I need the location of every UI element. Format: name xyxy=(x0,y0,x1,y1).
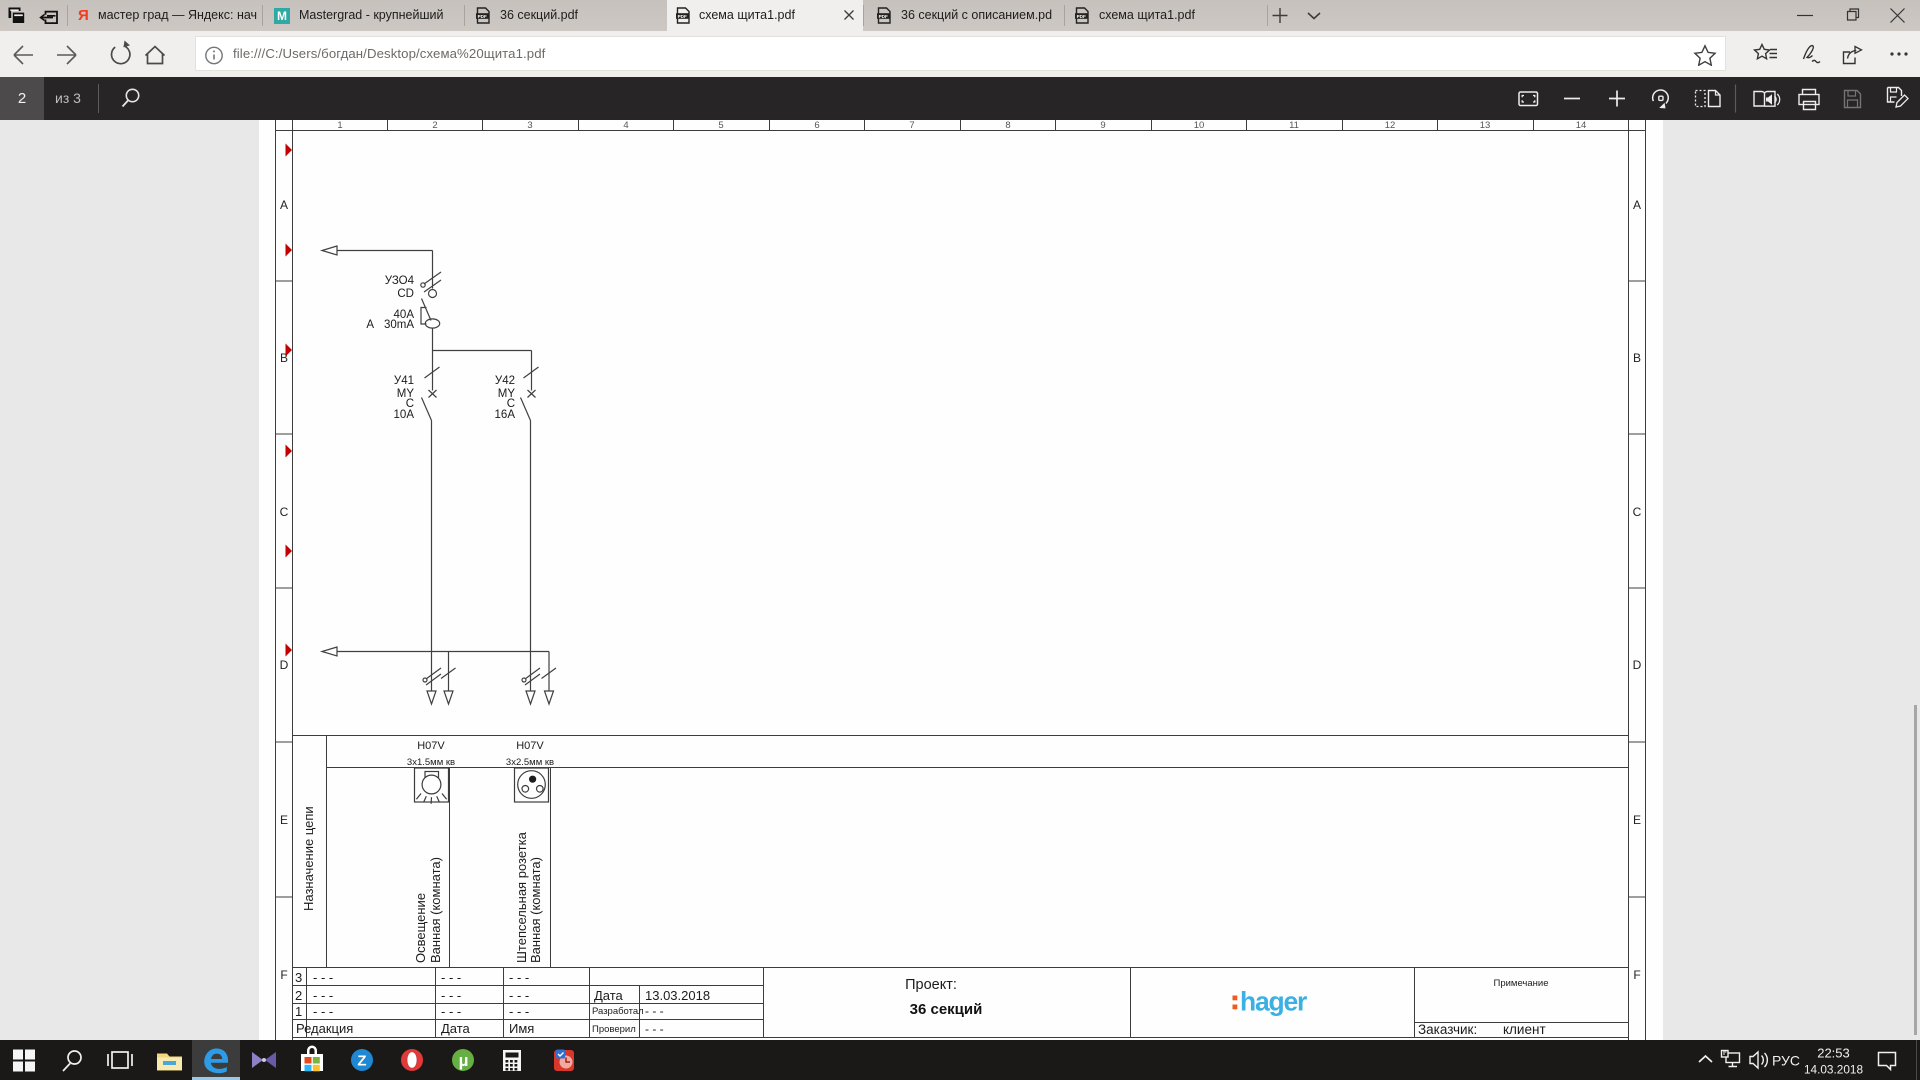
svg-text:F: F xyxy=(1633,968,1640,982)
svg-text:B: B xyxy=(1633,351,1641,365)
svg-text:µ: µ xyxy=(459,1051,469,1070)
svg-text:Примечание: Примечание xyxy=(1494,978,1549,989)
svg-text:10A: 10A xyxy=(394,409,415,421)
svg-text:6: 6 xyxy=(814,120,819,131)
svg-text:Ванная (комната): Ванная (комната) xyxy=(428,857,443,963)
svg-text:3x2.5мм кв: 3x2.5мм кв xyxy=(506,757,554,768)
svg-text:9: 9 xyxy=(1100,120,1105,131)
svg-text:Разработал: Разработал xyxy=(592,1006,644,1017)
svg-text:- - -: - - - xyxy=(313,970,333,985)
svg-text:- - -: - - - xyxy=(441,970,461,985)
svg-text:Редакция: Редакция xyxy=(296,1021,353,1036)
svg-text:14.03.2018: 14.03.2018 xyxy=(1804,1063,1863,1077)
svg-text:7: 7 xyxy=(909,120,914,131)
svg-text:- - -: - - - xyxy=(645,1022,664,1036)
svg-text:E: E xyxy=(280,813,288,827)
svg-text:клиент: клиент xyxy=(1503,1022,1546,1037)
svg-text:- - -: - - - xyxy=(509,970,529,985)
svg-text:hager: hager xyxy=(1240,987,1307,1017)
svg-text:1: 1 xyxy=(337,120,342,131)
svg-text:Заказчик:: Заказчик: xyxy=(1418,1022,1477,1037)
svg-text:22:53: 22:53 xyxy=(1817,1046,1850,1061)
svg-text:12: 12 xyxy=(1385,120,1396,131)
svg-text:- - -: - - - xyxy=(441,1004,461,1019)
svg-text:11: 11 xyxy=(1289,120,1299,131)
svg-text:Дата: Дата xyxy=(594,988,624,1003)
svg-text:Дата: Дата xyxy=(441,1021,471,1036)
svg-text:C: C xyxy=(280,505,289,519)
svg-text:2: 2 xyxy=(295,988,302,1003)
svg-text:30mA: 30mA xyxy=(384,319,414,331)
svg-text:3: 3 xyxy=(295,970,302,985)
svg-text:Ванная (комната): Ванная (комната) xyxy=(528,857,543,963)
svg-text:У42: У42 xyxy=(495,375,515,387)
svg-text:A: A xyxy=(1633,198,1641,212)
svg-text:A: A xyxy=(280,198,288,212)
svg-text:13: 13 xyxy=(1480,120,1491,131)
svg-text:РУС: РУС xyxy=(1772,1053,1800,1069)
svg-text:Штепсельная розетка: Штепсельная розетка xyxy=(514,831,529,963)
svg-text:H07V: H07V xyxy=(516,740,544,752)
svg-text:5: 5 xyxy=(718,120,723,131)
svg-text:Назначение цепи: Назначение цепи xyxy=(301,806,316,911)
svg-text:Проверил: Проверил xyxy=(592,1024,636,1035)
svg-text:2: 2 xyxy=(432,120,437,131)
svg-text:- - -: - - - xyxy=(313,988,333,1003)
svg-text:Z: Z xyxy=(357,1053,366,1070)
svg-text:F: F xyxy=(280,968,287,982)
svg-text:- - -: - - - xyxy=(313,1004,333,1019)
svg-text:УЗО4: УЗО4 xyxy=(385,275,415,287)
svg-text:13.03.2018: 13.03.2018 xyxy=(645,988,710,1003)
svg-text:A: A xyxy=(366,319,374,331)
svg-text:Имя: Имя xyxy=(509,1021,534,1036)
svg-text:- - -: - - - xyxy=(441,988,461,1003)
svg-text:3: 3 xyxy=(527,120,532,131)
svg-text:E: E xyxy=(1633,813,1641,827)
svg-text:10: 10 xyxy=(1194,120,1205,131)
svg-text:Проект:: Проект: xyxy=(905,977,957,993)
svg-text:- - -: - - - xyxy=(509,1004,529,1019)
svg-text:PDF: PDF xyxy=(678,14,687,19)
svg-text:36 секций: 36 секций xyxy=(910,1001,983,1018)
svg-text:3x1.5мм кв: 3x1.5мм кв xyxy=(407,757,455,768)
svg-text:D: D xyxy=(280,658,289,672)
svg-text:H07V: H07V xyxy=(417,740,445,752)
svg-text:- - -: - - - xyxy=(645,1004,664,1018)
svg-text:C: C xyxy=(1633,505,1642,519)
svg-text:PDF: PDF xyxy=(478,14,487,19)
svg-text:Освещение: Освещение xyxy=(413,893,428,963)
svg-text:4: 4 xyxy=(623,120,628,131)
svg-text:D: D xyxy=(1633,658,1642,672)
svg-text:14: 14 xyxy=(1576,120,1587,131)
svg-text:PDF: PDF xyxy=(1077,14,1086,19)
svg-text:16A: 16A xyxy=(495,409,516,421)
svg-text:PDF: PDF xyxy=(879,14,888,19)
svg-text:У41: У41 xyxy=(394,375,414,387)
svg-text:1: 1 xyxy=(295,1004,302,1019)
svg-text:8: 8 xyxy=(1005,120,1010,131)
svg-text:- - -: - - - xyxy=(509,988,529,1003)
svg-text:CD: CD xyxy=(397,288,414,300)
